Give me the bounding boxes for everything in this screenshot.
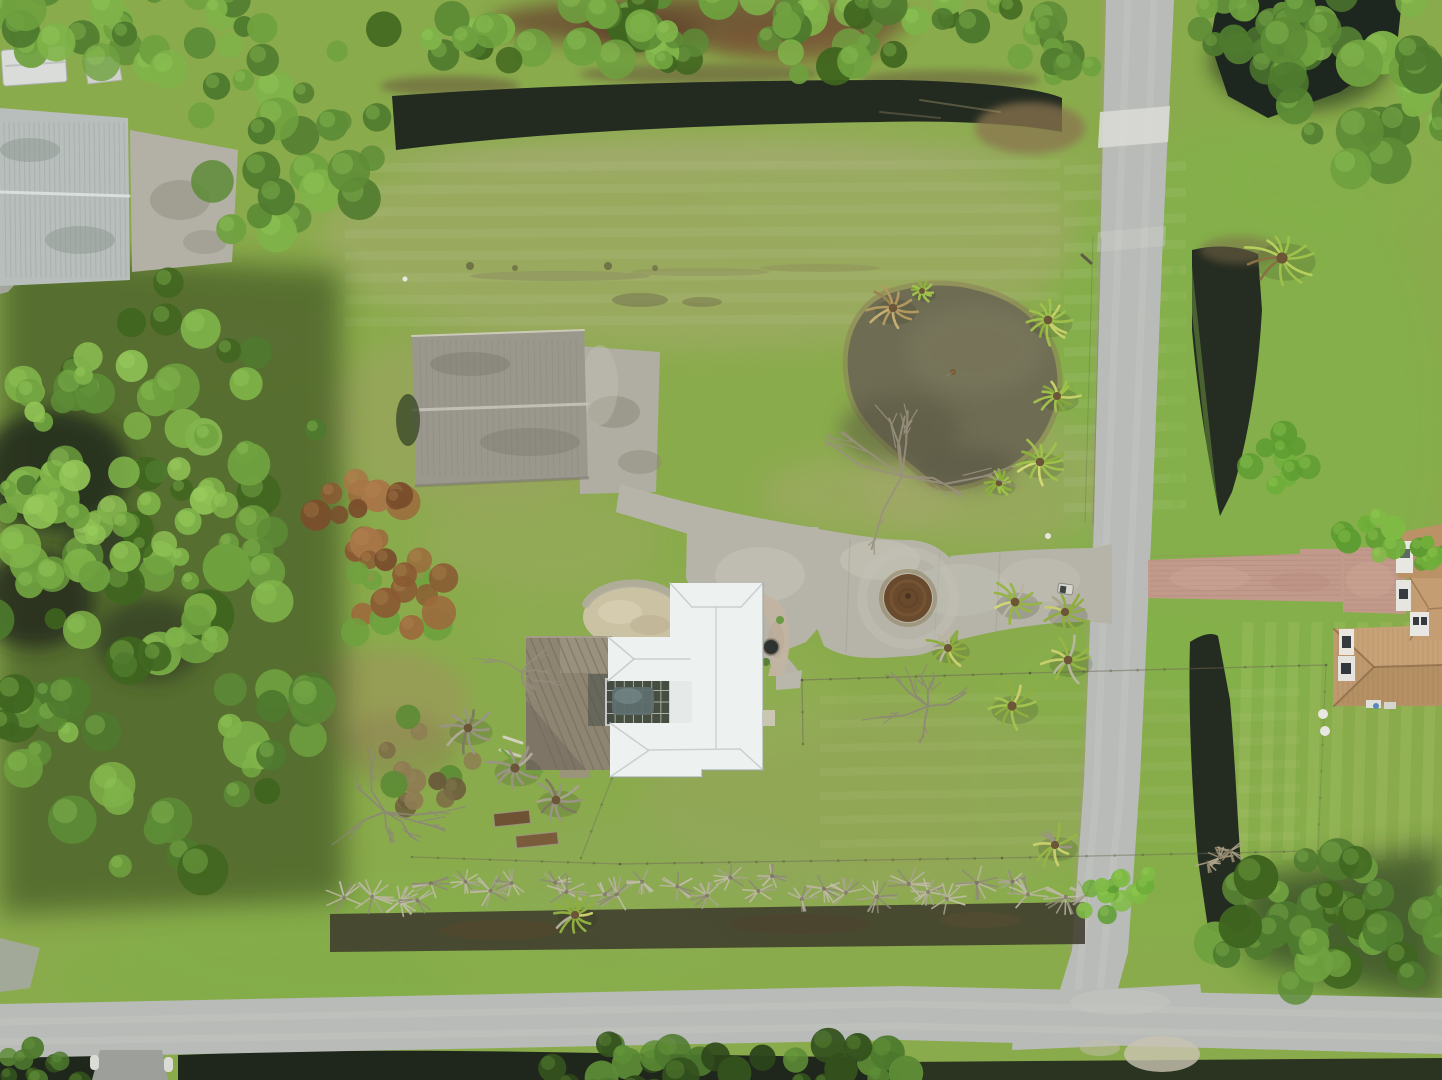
brick-mottle [1346,562,1394,598]
fence-post [567,861,570,864]
trees-southwest-corner-highlight [2,1069,10,1077]
pond-water-light [905,305,1045,395]
forest-west-light-canopy [79,561,111,593]
metal-stain [0,138,60,162]
treeline-north-canopy [778,39,804,65]
dead-brush-row-center [907,882,911,886]
forest-dead-patch-canopy [380,771,407,798]
trees-southeast-highlight [1281,972,1299,990]
trees-north-of-building-highlight [303,172,325,194]
well-cap [1318,709,1328,719]
dead-brush-row-center [415,898,419,902]
forest-west-highlight [145,644,160,659]
trees-north-of-building-canopy [327,41,348,62]
forest-west-highlight [220,716,232,728]
dead-brush-row-center [1010,880,1014,884]
trees-northwest-highlight [114,23,127,36]
dead-brush-row-frond [465,882,480,883]
dead-brush-row-frond [976,883,977,900]
forest-west-canopy [254,778,280,804]
forest-west-highlight [53,799,77,823]
trees-southeast-highlight [1296,850,1308,862]
fence-post [810,860,813,863]
fence-post [1170,853,1173,856]
red-maple-south-highlight [402,617,414,629]
fence-post [801,679,804,682]
treeline-north-canopy [772,10,801,39]
trees-northwest-highlight [41,26,60,45]
dead-brush-row-center [554,881,558,885]
road-wear [1070,989,1170,1015]
trees-southwest-corner-highlight [52,1053,62,1063]
trees-northeast-canopy [1401,93,1425,117]
trees-south-highlight [786,1049,799,1062]
palm-tree-trunk [1044,316,1053,325]
palm-tree-trunk [571,911,579,919]
forest-west-light-highlight [196,426,208,438]
trees-north-of-building-highlight [219,216,234,231]
fence-post [1324,690,1327,693]
forest-west-highlight [293,681,317,705]
trees-southeast-highlight [1321,841,1342,862]
palm-tree-trunk [1011,598,1020,607]
dead-brush-row-center [1064,895,1068,899]
fence-post [755,861,758,864]
red-maple-south-highlight [373,590,388,605]
dead-brush-row-center [875,895,879,899]
road-verge-grass [1166,255,1186,515]
forest-west-light-highlight [26,497,43,514]
dead-brush-row-center [926,890,930,894]
fence-post [1254,851,1257,854]
entry-window [1399,589,1408,599]
forest-west-highlight [239,508,257,526]
trees-south-highlight [847,1035,861,1049]
palm-tree-trunk [919,288,925,294]
ac-unit [1384,702,1396,709]
forest-west-light-highlight [66,505,79,518]
pool-highlight [614,688,642,704]
dead-brush-row-center [705,894,709,898]
trees-southeast-highlight [1342,848,1359,865]
culvert-pipe [90,1055,99,1070]
bush-east-highlight [1240,455,1253,468]
driveway-stub-south [92,1050,168,1080]
forest-dead-patch-highlight [380,743,389,752]
green-bush-row-end-highlight [1114,870,1123,879]
palm-tree-trunk [1061,608,1069,616]
fence-post [1142,854,1145,857]
forest-west-light-canopy [24,401,45,422]
fence-post [590,830,593,833]
bush-east-canopy [1287,437,1306,456]
fence-post [1029,672,1032,675]
fence-post [1163,668,1166,671]
bush-east-highlight [1268,477,1277,486]
forest-dead-patch-highlight [445,779,456,790]
entry-window [1421,617,1427,625]
trees-northwest-canopy [247,13,277,43]
bush-east-highlight [1284,461,1295,472]
forest-dead-patch-canopy [428,772,446,790]
forest-dead-patch-canopy [463,752,481,770]
dead-brush-row-frond [911,891,928,892]
treeline-north-highlight [454,28,467,41]
mud-patch [940,912,1020,928]
forest-west-canopy [239,336,271,368]
dead-brush-row-center [822,887,826,891]
forest-dead-patch-canopy [436,789,455,808]
bush-east-highlight [1371,509,1380,518]
fence-post [886,676,889,679]
brick-mottle [1270,572,1330,592]
treeline-north-canopy [625,9,658,42]
bush-east-highlight [1428,548,1438,558]
mud-patch [730,914,870,934]
forest-west-highlight [1,527,23,549]
forest-west-canopy [257,517,288,548]
fence-post [1217,667,1220,670]
forest-west-canopy [112,652,137,677]
forest-west-canopy [117,308,146,337]
red-maple-south-highlight [432,565,447,580]
forest-west-highlight [226,783,239,796]
fence-post [1244,666,1247,669]
trees-southeast-canopy [1219,905,1263,949]
red-maple-south-highlight [395,564,407,576]
sand-mottle [630,615,670,635]
trees-north-of-building-highlight [261,181,280,200]
barn-west-bush [396,394,420,446]
trees-northeast-canopy [1268,62,1309,103]
forest-west-highlight [307,420,318,431]
trees-south-highlight [814,1030,832,1048]
green-bush-row-end-highlight [1142,868,1149,875]
dead-brush-row-center [1026,892,1030,896]
forest-west-light-highlight [76,367,86,377]
red-maple-south-highlight [362,552,371,561]
fence-post [1320,770,1323,773]
laundry-item [1373,703,1379,709]
forest-west-light-highlight [38,559,56,577]
red-maple-north-highlight [353,529,369,545]
dead-brush-row-center [756,889,760,893]
palm-tree-trunk [1007,701,1016,710]
forest-west-light-highlight [100,497,115,512]
trees-north-of-building-highlight [332,153,353,174]
roof-ridge [648,749,740,750]
fence-post [802,743,805,746]
bush-east-highlight [1273,423,1286,436]
dead-brush-row-center [728,876,732,880]
dried-palm-trunk [889,304,898,313]
deck-steps [560,770,590,778]
treeline-north-highlight [760,28,773,41]
palm-tree-trunk [1051,841,1059,849]
fence-post [1113,854,1116,857]
forest-west-highlight [18,572,32,586]
trees-south-highlight [541,1056,555,1070]
fence-post [463,857,466,860]
forest-west-highlight [0,677,19,697]
trees-northeast-highlight [1335,151,1356,172]
dead-palm-trunk [510,763,519,772]
wet-spot [612,293,668,307]
red-maple-south-canopy [422,595,456,629]
dead-brush-row-frond [677,887,678,901]
dead-brush-row-frond [956,883,977,884]
fence-post [1318,823,1321,826]
palm-tree-trunk [944,644,952,652]
mow-stripes-east-lawn-line [1311,622,1317,860]
bush-east-highlight [1412,539,1422,549]
barn-stain [480,428,580,456]
trees-south-highlight [599,1033,612,1046]
dead-brush-row-center [429,881,433,885]
trees-northwest-highlight [153,53,172,72]
trees-southeast-highlight [1388,944,1405,961]
fence-post [411,856,414,859]
entry-window [1413,617,1419,625]
forest-west-canopy [165,627,185,647]
wet-spot [466,262,474,270]
fence-post [1283,850,1286,853]
palm-tree-trunk [1053,392,1061,400]
dead-brush-row-center [975,881,979,885]
red-maple-north-highlight [304,502,320,518]
dead-brush-row-frond [451,882,466,883]
dead-brush-row-frond [677,873,678,887]
forest-west-light-highlight [170,459,182,471]
road-culvert-strip [1098,106,1170,148]
red-maple-north-highlight [323,484,334,495]
fence-post [619,863,622,866]
fence-post [829,678,832,681]
fence-post [837,859,840,862]
dead-brush-row-center [510,881,514,885]
forest-west-highlight [94,765,117,788]
fence-post [489,858,492,861]
trees-southeast-highlight [1412,899,1432,919]
worn-streak [760,264,880,272]
trees-northwest-canopy [184,27,216,59]
forest-west-light-highlight [183,573,192,582]
bush-east-highlight [1373,548,1381,556]
walk-plant [776,616,784,624]
fence-post [1136,669,1139,672]
forest-west-light-highlight [139,493,151,505]
fence-post [864,859,867,862]
fence-post [1321,743,1324,746]
fence-post [1298,664,1301,667]
trees-northeast-small-canopy [1218,24,1249,55]
trees-southeast-highlight [1367,881,1382,896]
dead-brush-row-frond [824,889,825,903]
well-cap [1320,726,1330,736]
forest-west-light-highlight [113,543,129,559]
treeline-north-highlight [475,15,493,33]
forest-west-highlight [219,340,231,352]
fence-post [701,861,704,864]
dead-brush-row-center [603,892,607,896]
dead-brush-row-frond [431,883,450,884]
fence-post [515,859,518,862]
trees-northeast-highlight [1382,107,1403,128]
trees-north-of-building-highlight [206,75,220,89]
forest-west-highlight [37,683,48,694]
forest-west-canopy [145,460,168,483]
treeline-north-canopy [496,47,523,74]
green-bush-row-end-highlight [1078,903,1086,911]
fence-post [1000,673,1003,676]
trees-northeast-highlight [1398,38,1416,56]
trees-south-highlight [666,1060,685,1079]
forest-dead-patch-highlight [406,792,416,802]
forest-west-light-highlight [214,493,227,506]
trees-north-of-building-highlight [295,84,306,95]
trees-north-road-highlight [1056,54,1070,68]
trees-northeast-highlight [1265,21,1289,45]
trees-north-road-highlight [1083,58,1093,68]
culvert-pipe [164,1057,173,1072]
forest-west-highlight [259,742,274,757]
lanai-roof [670,681,692,723]
dormer-window [1342,636,1351,648]
forest-west-highlight [151,801,174,824]
trees-south-highlight [615,1046,625,1056]
neighbor-gable-ridge [1428,608,1442,609]
dead-brush-row-center [640,880,644,884]
red-maple-north-canopy [348,499,367,518]
red-maple-north-highlight [364,482,380,498]
white-speck [403,277,408,282]
red-maple-south-highlight [376,550,387,561]
trees-north-road-highlight [1038,17,1050,29]
forest-west-highlight [153,306,169,322]
fence-post [1325,664,1328,667]
fence-post [1319,797,1322,800]
trees-south-canopy [749,1045,775,1071]
dormer-window [1341,663,1351,674]
forest-west-highlight [8,752,28,772]
dead-clump-canal-center [1228,849,1232,853]
trees-north-of-building-canopy [188,102,214,128]
mow-stripes-field-line [345,164,1060,168]
fence-post [915,675,918,678]
red-maple-south-highlight [409,549,422,562]
fence-post [801,711,804,714]
dead-brush-row-center [488,889,492,893]
red-maple-south-canopy [346,562,369,585]
forest-west-light-canopy [108,456,140,488]
forest-west-highlight [255,583,276,604]
forest-west-highlight [157,367,181,391]
forest-west-canopy [256,690,288,722]
gravel-patch [1080,1040,1120,1056]
treeline-north-highlight [658,22,669,33]
trees-north-of-building-highlight [319,111,335,127]
dead-brush-row-center [675,885,679,889]
red-maple-north-highlight [388,491,398,501]
trees-south-highlight [658,1037,677,1056]
fence-post [943,674,946,677]
palm-tree-trunk [1064,656,1073,665]
forest-west-canopy [45,608,67,630]
fence-post [892,858,895,861]
fence-post [919,858,922,861]
fence-post [600,803,603,806]
trees-north-of-building-highlight [250,46,266,62]
fence-post [1198,852,1201,855]
forest-west-highlight [50,679,72,701]
forest-west-light-highlight [119,352,135,368]
trees-northeast-small-canopy [1188,17,1213,42]
worn-streak [470,271,650,281]
fence-post [646,862,649,865]
brick-mottle [1170,566,1250,590]
metal-stain [45,226,115,254]
treeline-north-highlight [841,47,858,64]
fence-post [1190,667,1193,670]
forest-west-light-highlight [1,481,9,489]
dead-brush-row-center [463,880,467,884]
barn-stain [430,352,510,376]
trees-southeast-highlight [1302,930,1317,945]
dead-brush-row-center [615,892,619,896]
aerial-photo-canvas [0,0,1442,1080]
forest-west-light-highlight [62,462,78,478]
dead-palm-trunk [552,796,561,805]
forest-dead-patch-canopy [396,705,421,730]
mow-stripes-field-line [345,252,1060,256]
trees-north-of-building-highlight [246,154,265,173]
trees-southwest-corner-highlight [15,1051,25,1061]
fence-post [1271,665,1274,668]
mow-stripes-field-line [345,208,1060,212]
fence-post [858,677,861,680]
red-maple-south-canopy [341,618,369,646]
wet-spot [512,265,518,271]
dead-brush-row-center [770,874,774,878]
trees-southeast-highlight [1400,964,1414,978]
treeline-north-canopy [680,28,709,57]
gravel-patch [1124,1036,1200,1072]
pad-stain [618,450,662,474]
driveway-road-flare [1092,544,1112,624]
forest-west-highlight [173,480,184,491]
forest-west-highlight [237,442,249,454]
trees-northeast-highlight [1341,43,1365,67]
dead-brush-row-center [370,895,374,899]
forest-west-highlight [156,270,171,285]
dead-brush-row-center [800,897,804,901]
worn-streak [630,268,770,276]
fence-post [673,862,676,865]
forest-west-canopy [181,605,211,635]
wet-spot [652,265,658,271]
forest-west-light-highlight [193,487,208,502]
treeline-north-canopy [789,64,809,84]
trees-southeast-highlight [1238,858,1260,880]
treeline-north-highlight [517,32,536,51]
forest-west-highlight [251,556,270,575]
dead-brush-row-center [565,890,569,894]
trees-northwest-highlight [86,46,105,65]
fence-post [580,857,583,860]
trees-north-of-building-highlight [366,105,380,119]
forest-west-light-highlight [18,381,32,395]
forest-west-light-highlight [87,526,97,536]
